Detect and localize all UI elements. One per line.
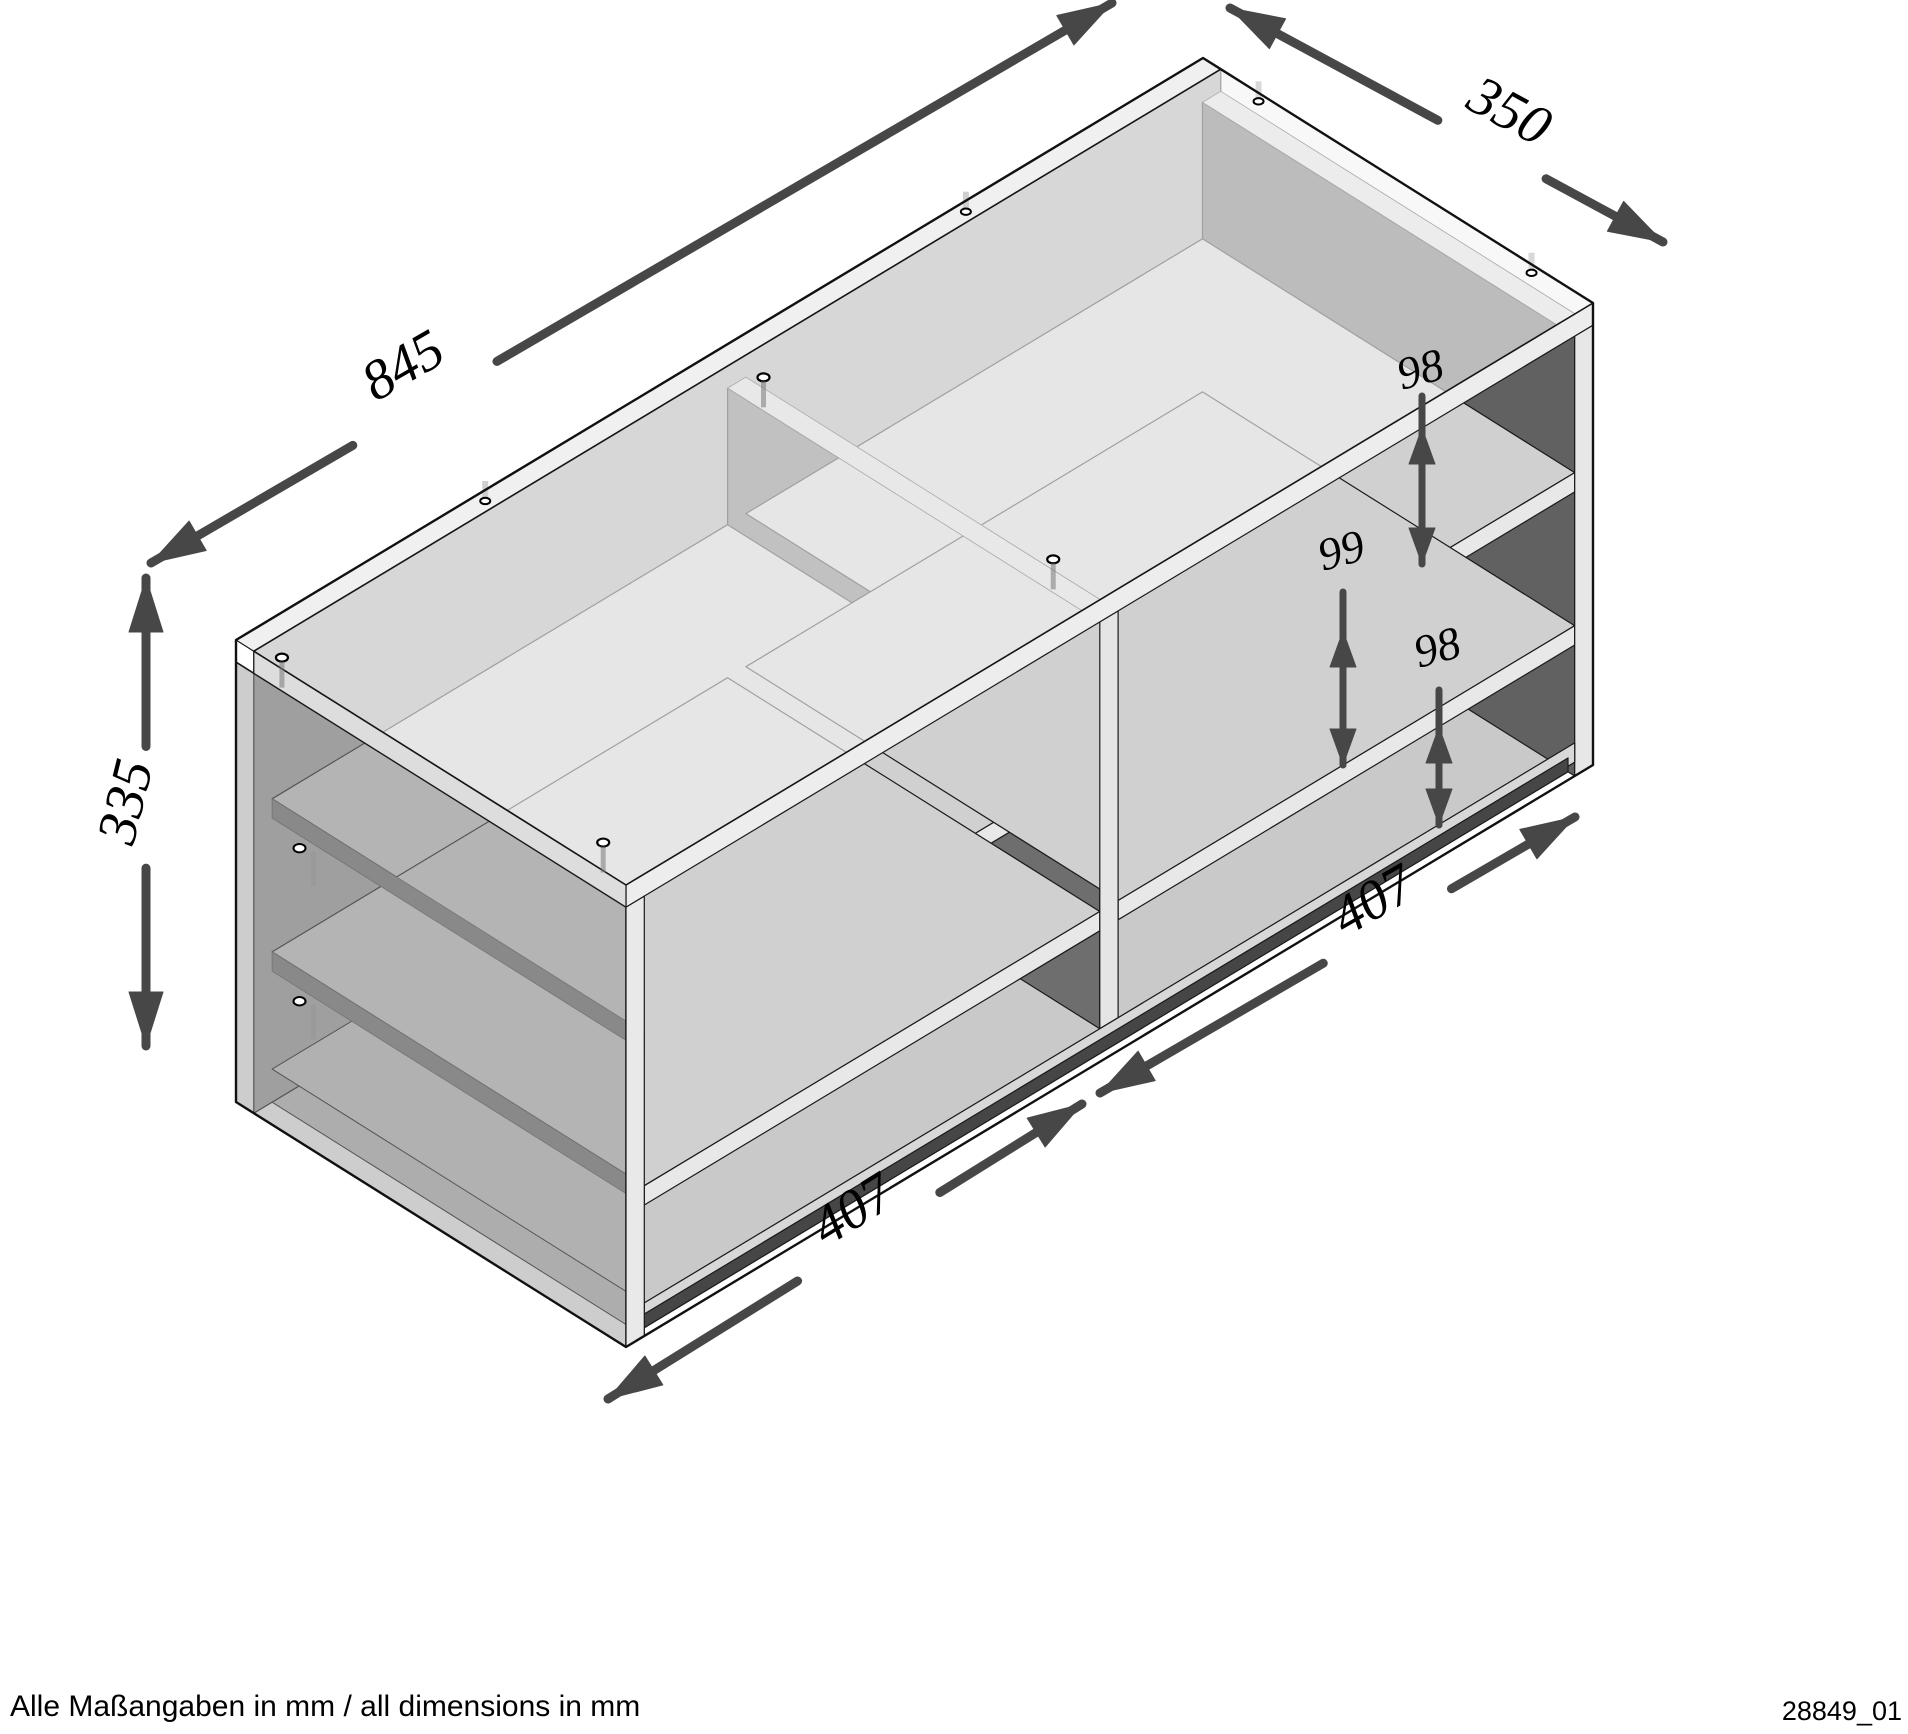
dowel-hole-right-2	[1527, 270, 1537, 276]
top-face-hole-2	[1047, 555, 1059, 563]
right-side-front-edge	[1575, 325, 1593, 776]
divider-front-edge	[1100, 611, 1118, 1029]
dowel-hole-back-2	[961, 208, 971, 214]
dim-left-compartment-arrowhead-end	[1027, 1104, 1082, 1147]
furniture-dimension-diagram: 845350335407407989998	[0, 0, 1908, 1734]
dim-width-arrowhead-end	[1057, 3, 1112, 45]
top-face-hole-1	[597, 839, 609, 847]
dim-height-arrowhead-end	[129, 992, 163, 1046]
dim-height-label: 335	[85, 753, 166, 850]
dim-left-compartment-arrowhead-start	[608, 1356, 663, 1399]
top-face-hole-4	[276, 654, 288, 662]
dim-depth-arrowhead-start	[1230, 8, 1286, 49]
dowel-hole-back-1	[480, 498, 490, 504]
dim-height-arrowhead-start	[129, 578, 163, 632]
cam-hole-left-1	[294, 844, 306, 852]
dim-width-label: 845	[351, 318, 455, 414]
dim-right-compartment-arrowhead-end	[1520, 817, 1575, 859]
left-side-front-edge	[626, 896, 644, 1347]
dim-depth-label: 350	[1457, 63, 1561, 158]
cam-hole-left-2	[294, 997, 306, 1005]
dowel-hole-right-1	[1254, 98, 1264, 104]
dim-width-arrowhead-start	[151, 521, 206, 563]
dim-depth-arrowhead-end	[1607, 201, 1663, 242]
drawing-number: 28849_01	[1782, 1696, 1902, 1727]
units-note: Alle Maßangaben in mm / all dimensions i…	[10, 1690, 640, 1724]
top-face-hole-3	[758, 373, 770, 381]
